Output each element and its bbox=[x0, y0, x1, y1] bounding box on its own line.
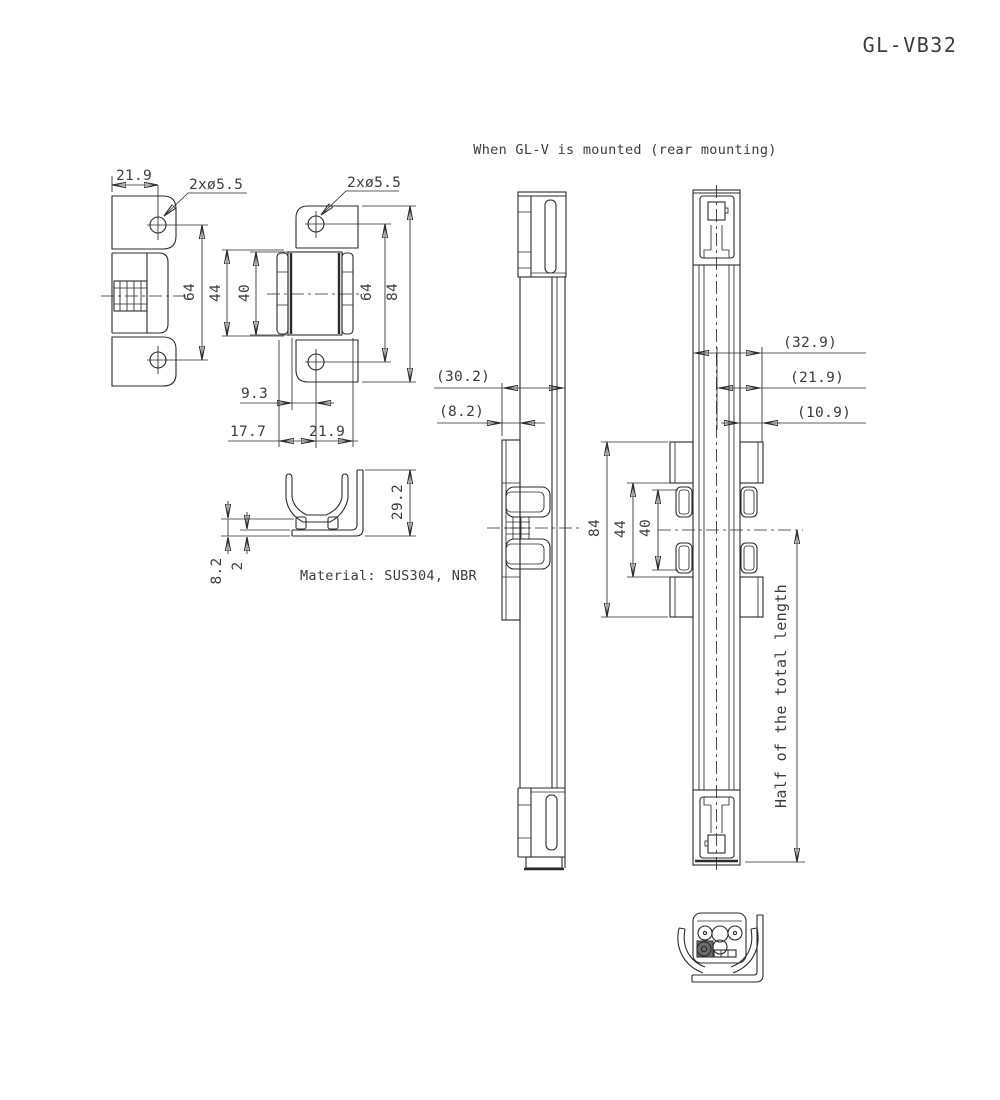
clip-arm-left bbox=[277, 253, 288, 334]
mounting-caption: When GL-V is mounted (rear mounting) bbox=[473, 142, 776, 158]
view-clip-section: 29.2 8.2 2 Material: SUS304, NBR bbox=[209, 470, 478, 585]
dim-offset-left: 17.7 bbox=[230, 424, 266, 440]
drawing-canvas: GL-VB32 When GL-V is mounted (rear mount… bbox=[0, 0, 1000, 1100]
dim-rear-clip-inner: 40 bbox=[638, 519, 654, 537]
view-bracket-side: 21.9 2xø5.5 64 bbox=[101, 168, 247, 386]
page-title: GL-VB32 bbox=[863, 33, 958, 57]
dim-bracket-width: 21.9 bbox=[116, 168, 152, 184]
clip-arm-right bbox=[342, 253, 353, 334]
dim-rear-overall: 84 bbox=[587, 519, 603, 537]
sensor-body-section bbox=[288, 252, 342, 335]
dim-section-lip: 8.2 bbox=[209, 557, 225, 584]
dim-side-offset: (8.2) bbox=[439, 404, 484, 420]
view-sensor-rear: 84 44 40 (32.9) (21.9) (10.9) Half of th… bbox=[587, 185, 866, 870]
hole-callout-front: 2xø5.5 bbox=[347, 175, 401, 191]
view-end-in-clip bbox=[678, 913, 763, 982]
dim-rear-depth-total: (32.9) bbox=[783, 335, 837, 351]
dim-hole-pitch-side: 64 bbox=[182, 283, 198, 301]
material-note: Material: SUS304, NBR bbox=[300, 568, 478, 584]
dim-rear-clip-outer: 44 bbox=[613, 520, 629, 538]
view-sensor-side: (30.2) (8.2) bbox=[434, 192, 580, 869]
dim-section-height: 29.2 bbox=[390, 484, 406, 520]
dim-rear-depth-inner: (10.9) bbox=[797, 405, 851, 421]
dim-hole-pitch-front: 64 bbox=[359, 283, 375, 301]
hole-callout-side: 2xø5.5 bbox=[189, 177, 243, 193]
dim-offset-center: 9.3 bbox=[241, 386, 268, 402]
half-length-note: Half of the total length bbox=[772, 584, 790, 808]
dim-rear-depth-mid: (21.9) bbox=[790, 370, 844, 386]
dim-clip-inner: 40 bbox=[237, 284, 253, 302]
view-bracket-front-mounted: 2xø5.5 44 40 64 84 9.3 17.7 21.9 bbox=[208, 175, 416, 448]
technical-drawing-page: GL-VB32 When GL-V is mounted (rear mount… bbox=[0, 0, 1000, 1100]
dim-overall-height-front: 84 bbox=[385, 283, 401, 301]
dim-offset-right: 21.9 bbox=[309, 424, 345, 440]
dim-clip-outer: 44 bbox=[208, 284, 224, 302]
dim-side-depth: (30.2) bbox=[436, 369, 490, 385]
dim-section-thickness: 2 bbox=[230, 561, 246, 570]
